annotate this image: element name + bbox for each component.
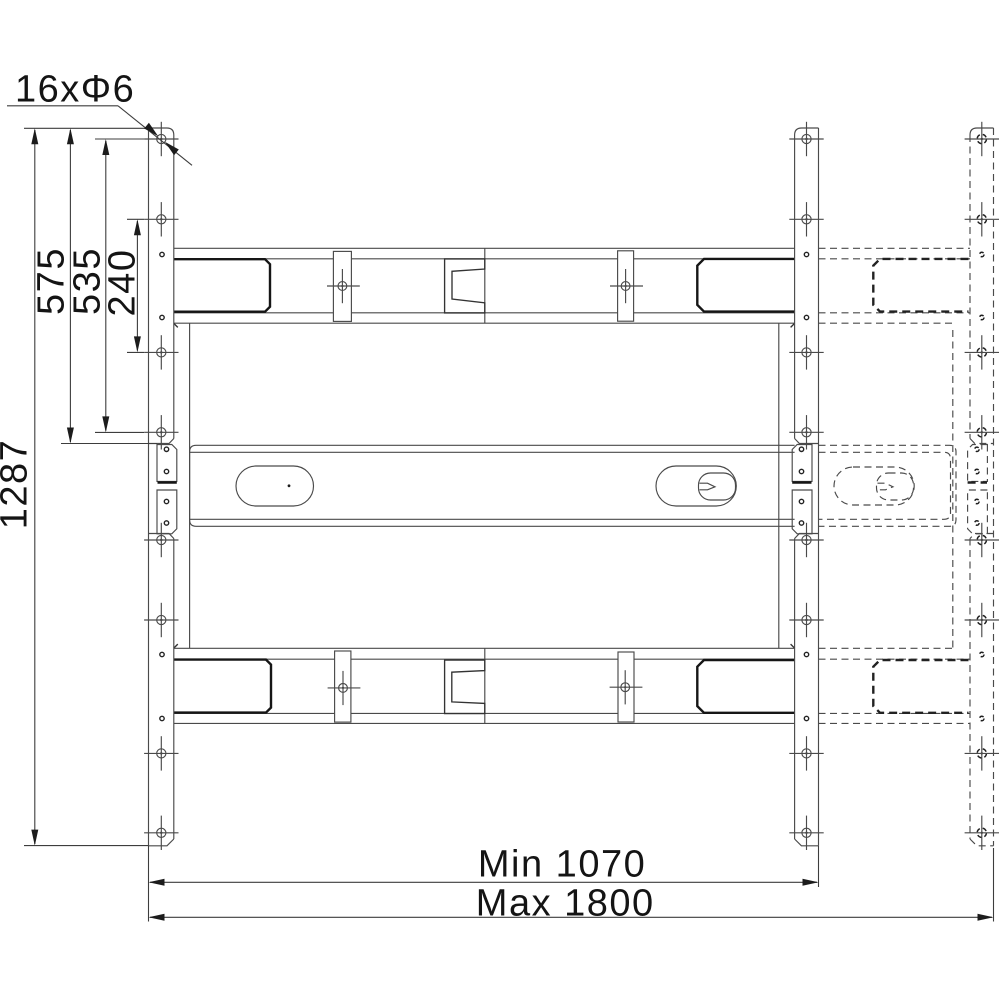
svg-text:240: 240 xyxy=(102,249,144,317)
svg-text:1287: 1287 xyxy=(0,439,36,530)
svg-text:16xΦ6: 16xΦ6 xyxy=(15,69,135,111)
svg-text:Min 1070: Min 1070 xyxy=(478,844,646,886)
svg-text:Max 1800: Max 1800 xyxy=(476,883,655,925)
